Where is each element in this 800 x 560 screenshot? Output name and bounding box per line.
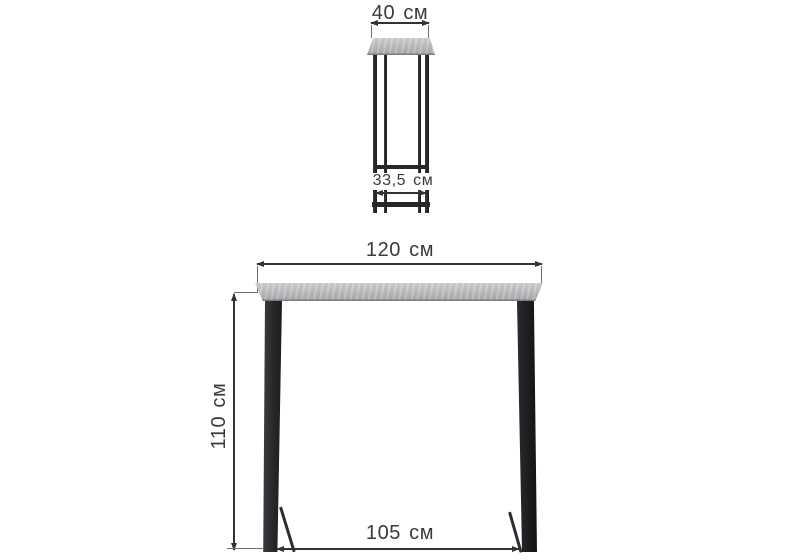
side-crossbar-upper — [374, 165, 428, 169]
extension-line — [234, 292, 258, 293]
front-tabletop — [255, 283, 543, 301]
front-leg-span-arrow — [277, 548, 519, 550]
front-width-arrow — [257, 263, 542, 265]
side-top-width-label: 40 см — [340, 3, 460, 24]
front-leg-span-label: 105 см — [340, 523, 460, 544]
extension-line — [428, 25, 429, 38]
front-right-leg — [515, 301, 537, 552]
extension-line — [541, 266, 542, 283]
side-top-width-arrow — [371, 22, 429, 24]
front-height-arrow — [233, 294, 235, 550]
extension-line — [227, 548, 264, 549]
front-height-label: 110 см — [209, 356, 231, 476]
side-crossbar-bottom — [372, 202, 430, 207]
side-leg-span-arrow — [376, 192, 426, 194]
side-leg-span-label: 33,5 см — [352, 173, 454, 190]
furniture-dimension-diagram: 40 см 33,5 см 120 см 110 см 105 см — [0, 0, 800, 560]
front-left-leg — [263, 301, 283, 552]
front-width-label: 120 см — [340, 240, 460, 261]
side-tabletop — [367, 38, 435, 55]
extension-line — [371, 25, 372, 38]
